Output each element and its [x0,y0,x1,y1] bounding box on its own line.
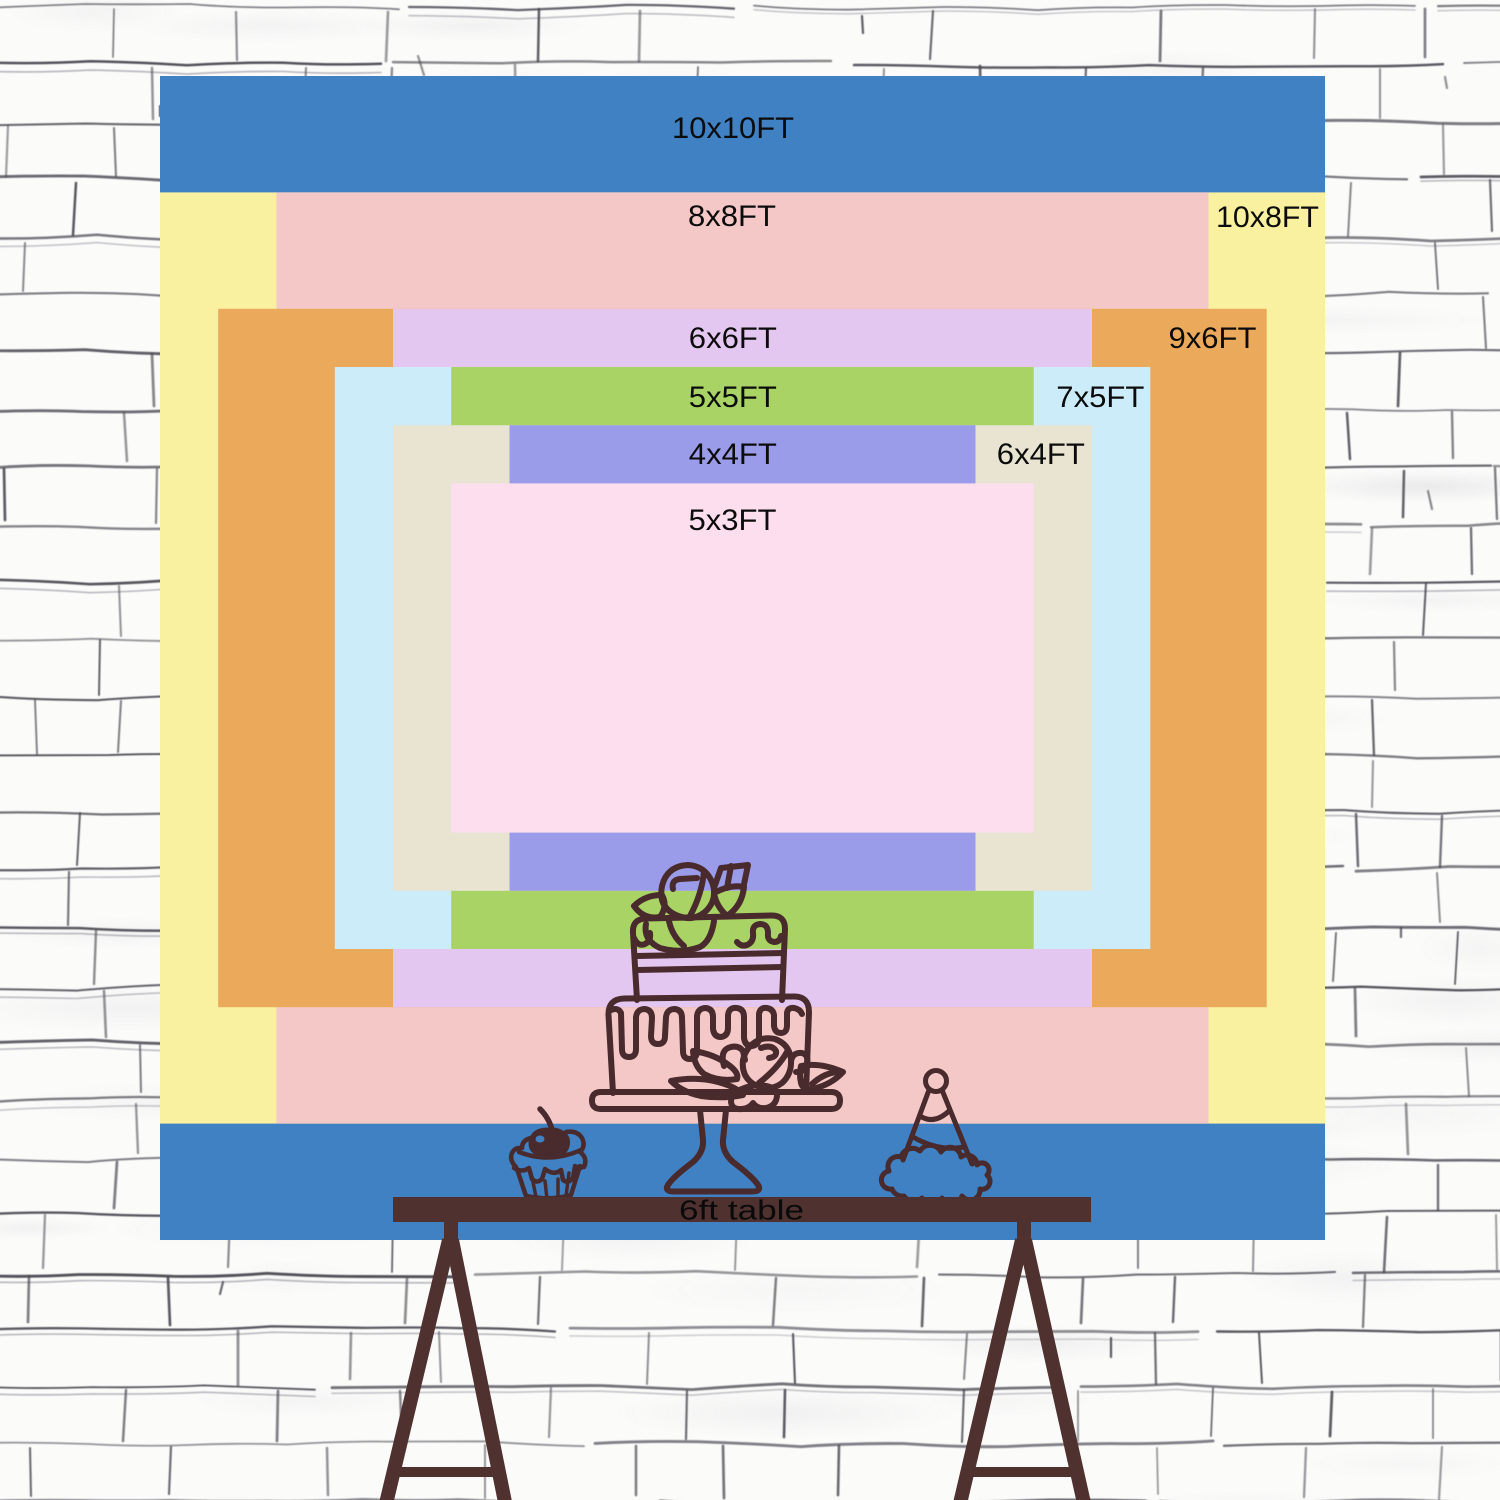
svg-text:8x8FT: 8x8FT [688,200,776,233]
svg-text:5x5FT: 5x5FT [689,381,777,414]
svg-text:6x4FT: 6x4FT [997,438,1085,471]
svg-text:5x3FT: 5x3FT [689,504,777,537]
svg-text:10x10FT: 10x10FT [672,112,794,145]
svg-text:10x8FT: 10x8FT [1216,201,1319,234]
svg-text:6ft table: 6ft table [679,1195,804,1226]
svg-text:9x6FT: 9x6FT [1169,322,1257,355]
svg-text:4x4FT: 4x4FT [689,438,777,471]
svg-text:6x6FT: 6x6FT [689,322,777,355]
svg-text:7x5FT: 7x5FT [1056,381,1144,414]
